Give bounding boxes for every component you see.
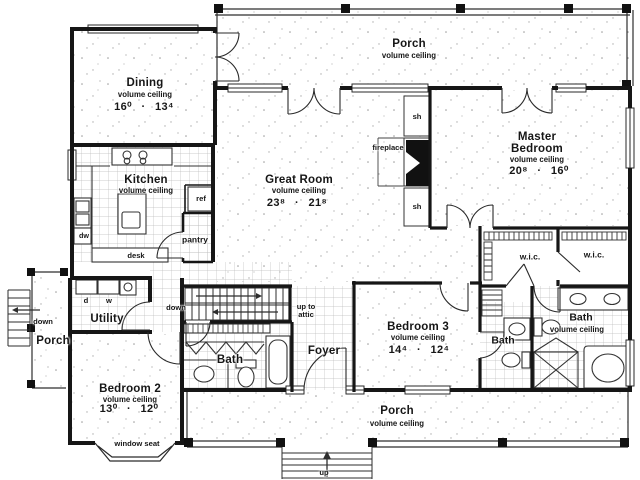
wic-right-door: [558, 252, 580, 272]
utility-fixtures: [76, 280, 136, 295]
pantry-label: pantry: [182, 236, 208, 245]
shelf-top-label: sh: [413, 113, 422, 121]
room-label-kitchen: Kitchen: [124, 174, 168, 186]
stairs: [185, 288, 290, 320]
room-label-porch-top: Porch: [392, 38, 426, 50]
toilet-tank: [534, 318, 542, 336]
fireplace-label: fireplace: [372, 144, 403, 152]
floor-plan-page: Porch volume ceiling Dining volume ceili…: [0, 0, 640, 480]
room-sub-bedroom-3: volume ceiling: [391, 334, 445, 342]
room-sub-master-bedroom: volume ceiling: [510, 156, 564, 164]
shelf-bottom-label: sh: [413, 203, 422, 211]
room-sub-great-room: volume ceiling: [272, 187, 326, 195]
room-label-wic-left: w.i.c.: [520, 253, 540, 262]
room-label-utility: Utility: [90, 313, 123, 325]
dryer-label: d: [84, 297, 89, 305]
entry-steps-up-label: up: [319, 469, 328, 477]
toilet-bowl: [238, 367, 254, 387]
washer-box: [98, 280, 119, 294]
room-label-master-bath: Bath: [569, 312, 592, 323]
room-sub-dining: volume ceiling: [118, 91, 172, 99]
stairs-up-to-attic-label: up to attic: [291, 303, 321, 319]
sink: [509, 323, 525, 335]
room-label-porch-bottom: Porch: [380, 405, 414, 417]
room-dims-bedroom-2: 13⁰ · 12⁰: [100, 404, 159, 416]
wic-left-door: [506, 264, 534, 286]
room-label-bedroom-3: Bedroom 3: [387, 321, 449, 333]
room-dims-dining: 16⁰ · 13⁴: [114, 102, 174, 114]
room-dims-master-bedroom: 20⁸ · 16⁰: [509, 166, 568, 178]
dryer-box: [76, 280, 97, 294]
room-dims-bedroom-3: 14⁴ · 12⁴: [389, 345, 450, 357]
refrigerator-label: ref: [196, 195, 206, 203]
room-sub-porch-top: volume ceiling: [382, 52, 436, 60]
room-label-hall-bath: Bath: [491, 335, 514, 346]
cooktop: [112, 148, 172, 165]
room-label-middle-bath: Bath: [217, 354, 243, 366]
floor-plan-drawing: [0, 0, 640, 480]
laundry-tub: [120, 280, 136, 295]
washer-label: w: [106, 297, 112, 305]
kitchen-sink: [74, 198, 91, 228]
room-label-bedroom-2: Bedroom 2: [99, 383, 161, 395]
room-sub-master-bath: volume ceiling: [550, 326, 604, 334]
room-label-great-room: Great Room: [265, 174, 333, 186]
room-label-master-bedroom: Master Bedroom: [500, 131, 574, 155]
stairs-down-label: down: [166, 304, 186, 312]
toilet-bowl: [502, 353, 520, 367]
toilet-tank: [522, 352, 530, 368]
window-seat-label: window seat: [114, 440, 159, 448]
dishwasher-label: dw: [79, 232, 89, 240]
room-label-wic-right: w.i.c.: [584, 251, 604, 260]
desk-label: desk: [127, 252, 144, 260]
room-sub-kitchen: volume ceiling: [119, 187, 173, 195]
room-sub-porch-bottom: volume ceiling: [370, 420, 424, 428]
room-dims-great-room: 23⁸ · 21⁸: [267, 198, 327, 210]
room-label-dining: Dining: [127, 77, 164, 89]
sink: [194, 366, 214, 382]
room-label-foyer: Foyer: [308, 345, 340, 357]
room-label-porch-left: Porch: [36, 335, 70, 347]
porch-down-label: down: [33, 318, 53, 326]
